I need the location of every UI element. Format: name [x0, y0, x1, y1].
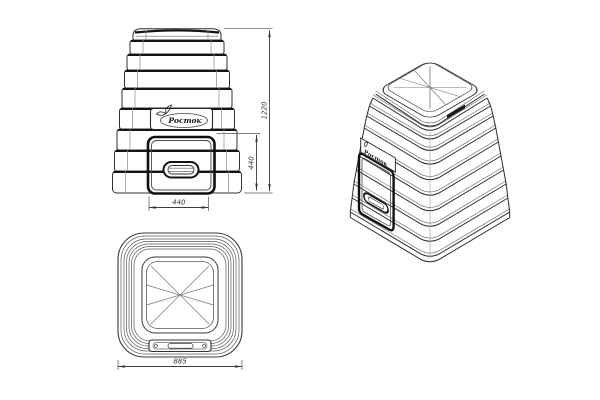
iso-view: Росток [350, 60, 509, 262]
front-tier [117, 129, 237, 151]
top-door-bracket [149, 340, 211, 352]
dim-text-1220: 1220 [261, 101, 269, 119]
handle-outer [164, 162, 199, 178]
dim-text-440h: 440 [172, 198, 186, 206]
lid-parting-spokes [147, 266, 214, 324]
dim-door-height: 440 [217, 134, 261, 191]
iso-door-handle [364, 192, 388, 215]
front-lid-dome-top-band [135, 30, 219, 32]
door-handle-front [164, 162, 199, 178]
front-tier [127, 54, 227, 71]
dim-text-440v: 440 [248, 156, 256, 170]
iso-handle-outer [364, 192, 388, 215]
front-tier [122, 88, 232, 109]
iso-vent-slot [447, 105, 465, 119]
front-tier [125, 70, 230, 89]
technical-drawing-canvas: Росток 1220 440 440 [0, 0, 600, 400]
dim-door-width: 440 [149, 197, 209, 212]
front-view: Росток 1220 440 440 [113, 29, 273, 211]
dim-text-885: 885 [173, 357, 187, 365]
bracket-outer [149, 340, 211, 352]
dim-base-width: 885 [118, 357, 242, 370]
front-tier [130, 40, 224, 55]
brand-plate-front: Росток [151, 105, 213, 130]
brand-text-front: Росток [167, 116, 202, 125]
front-tier-lips [114, 41, 241, 172]
top-view: 885 [118, 233, 242, 370]
